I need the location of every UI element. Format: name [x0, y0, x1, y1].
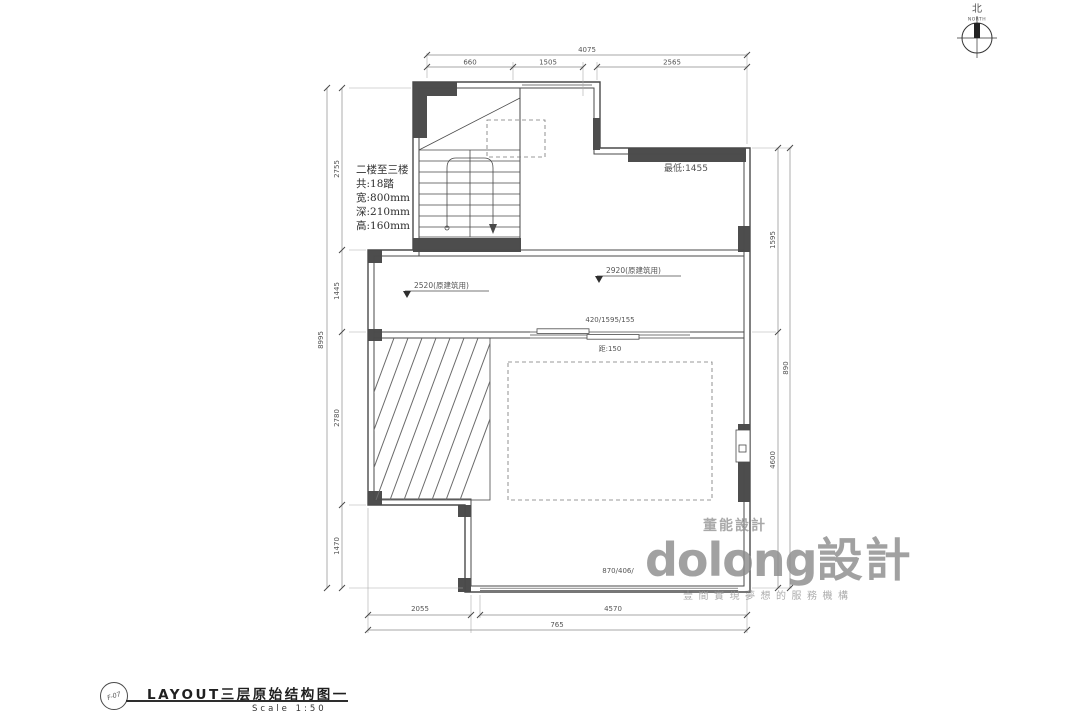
floor-plan-drawing: 4075 660 1505 2565 8995 2755 1445 2780 1…: [0, 0, 1080, 720]
dim-top-seg1-label: 660: [463, 59, 476, 67]
watermark-small-logo: 董能設計: [703, 515, 905, 535]
dim-bottom-seg2-label: 4570: [604, 605, 622, 613]
mid-window-dim-label: 420/1595/155: [585, 316, 634, 324]
sliding-panel-1: [537, 329, 589, 334]
dim-right-seg2-label: 4600: [769, 451, 777, 469]
dim-left-total-label: 8995: [317, 331, 325, 349]
hatch-area: [334, 338, 520, 500]
lowest-height-label: 最低:1455: [664, 162, 708, 174]
floor-plan-page: 4075 660 1505 2565 8995 2755 1445 2780 1…: [0, 0, 1080, 720]
stair-note: 二楼至三楼 共:18踏 宽:800mm 深:210mm 高:160mm: [356, 163, 410, 233]
watermark-brand: dolong設計: [645, 535, 905, 585]
level-triangle-icon: [403, 291, 411, 298]
stair-note-line: 深:210mm: [356, 205, 410, 219]
dim-left-seg4-label: 1470: [333, 537, 341, 555]
stair: [419, 98, 520, 237]
dim-bottom-total-label: 765: [550, 621, 563, 629]
north-arrow: 北 NORTH: [957, 3, 997, 58]
sliding-panel-2: [587, 335, 639, 340]
stair-note-line: 二楼至三楼: [356, 163, 410, 177]
stair-note-line: 高:160mm: [356, 219, 410, 233]
dim-left: 8995 2755 1445 2780 1470: [317, 85, 345, 591]
drawing-scale: Scale 1:50: [252, 704, 327, 714]
dim-bottom-seg1-label: 2055: [411, 605, 429, 613]
stair-note-line: 共:18踏: [356, 177, 410, 191]
bottom-window-dim-label: 870/406/: [602, 567, 634, 575]
stair-break-line: [419, 98, 520, 150]
dim-top-seg2-label: 1505: [539, 59, 557, 67]
dim-top: 4075 660 1505 2565: [424, 46, 750, 70]
dim-bottom: 2055 4570 765: [365, 605, 750, 633]
watermark: 董能設計 dolong設計 壹間實現夢想的服務機構: [645, 515, 905, 602]
watermark-brand-latin: dolong: [645, 533, 817, 587]
title-underline: [126, 700, 348, 702]
drawing-code: F-07: [106, 690, 122, 702]
level-triangle-icon: [595, 276, 603, 283]
level-marker-left: 2520(原建筑用): [403, 280, 489, 298]
dim-right-total-label: 890: [782, 361, 790, 374]
dim-left-seg2-label: 1445: [333, 282, 341, 300]
dim-left-seg3-label: 2780: [333, 409, 341, 427]
level-marker-right: 2920(原建筑用): [595, 265, 681, 283]
plan-annotations: 最低:1455 420/1595/155 距:150 870/406/: [585, 162, 708, 575]
north-needle-icon: [974, 23, 980, 38]
mid-window-sill-label: 距:150: [599, 345, 622, 353]
watermark-brand-cjk: 設計: [817, 533, 913, 587]
watermark-tagline: 壹間實現夢想的服務機構: [683, 587, 905, 602]
drawing-code-badge: F-07: [100, 682, 128, 710]
north-cn-label: 北: [972, 3, 982, 15]
north-en-label: NORTH: [968, 17, 986, 23]
level-right-label: 2920(原建筑用): [606, 265, 661, 275]
stair-note-line: 宽:800mm: [356, 191, 410, 205]
dashed-void-outlines: [487, 120, 712, 500]
dim-left-seg1-label: 2755: [333, 160, 341, 178]
dim-top-total-label: 4075: [578, 46, 596, 54]
stair-arrow-head: [489, 224, 497, 234]
dim-top-seg3-label: 2565: [663, 59, 681, 67]
level-left-label: 2520(原建筑用): [414, 280, 469, 290]
wall-niche: [736, 430, 750, 462]
dim-right-seg1-label: 1595: [769, 231, 777, 249]
